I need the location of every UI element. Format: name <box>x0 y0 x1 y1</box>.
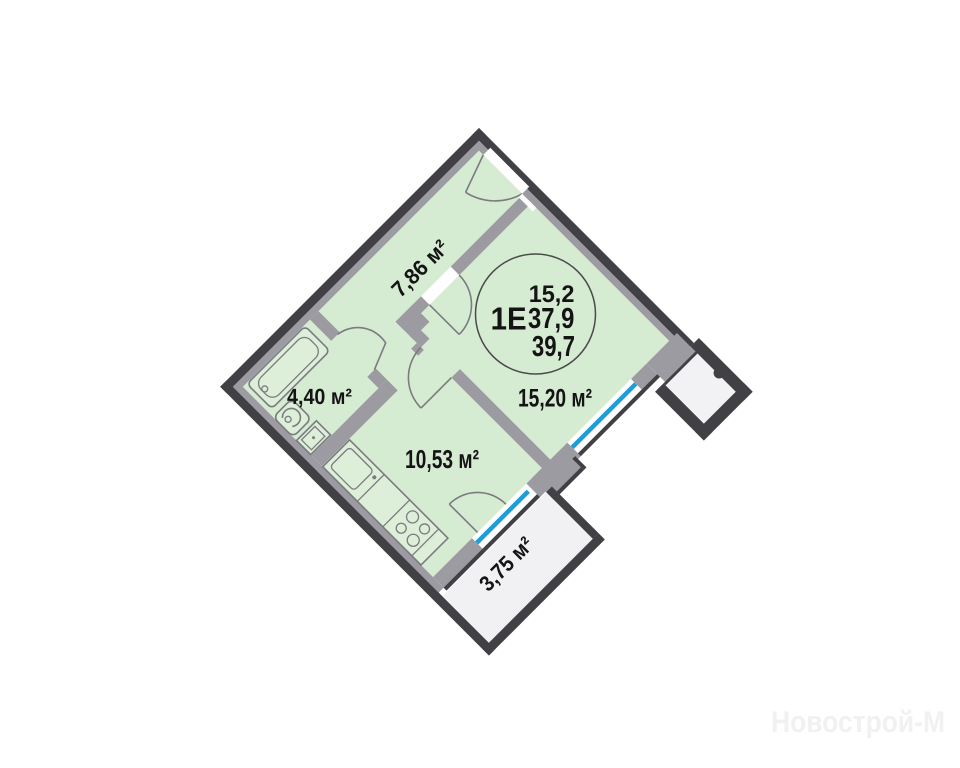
svg-text:Новострой-М: Новострой-М <box>771 706 945 739</box>
svg-text:4,40 м²: 4,40 м² <box>287 384 352 409</box>
svg-text:1Е: 1Е <box>491 300 527 336</box>
svg-text:39,7: 39,7 <box>532 331 575 363</box>
svg-text:15,20 м²: 15,20 м² <box>518 385 592 413</box>
svg-text:10,53 м²: 10,53 м² <box>405 444 479 474</box>
